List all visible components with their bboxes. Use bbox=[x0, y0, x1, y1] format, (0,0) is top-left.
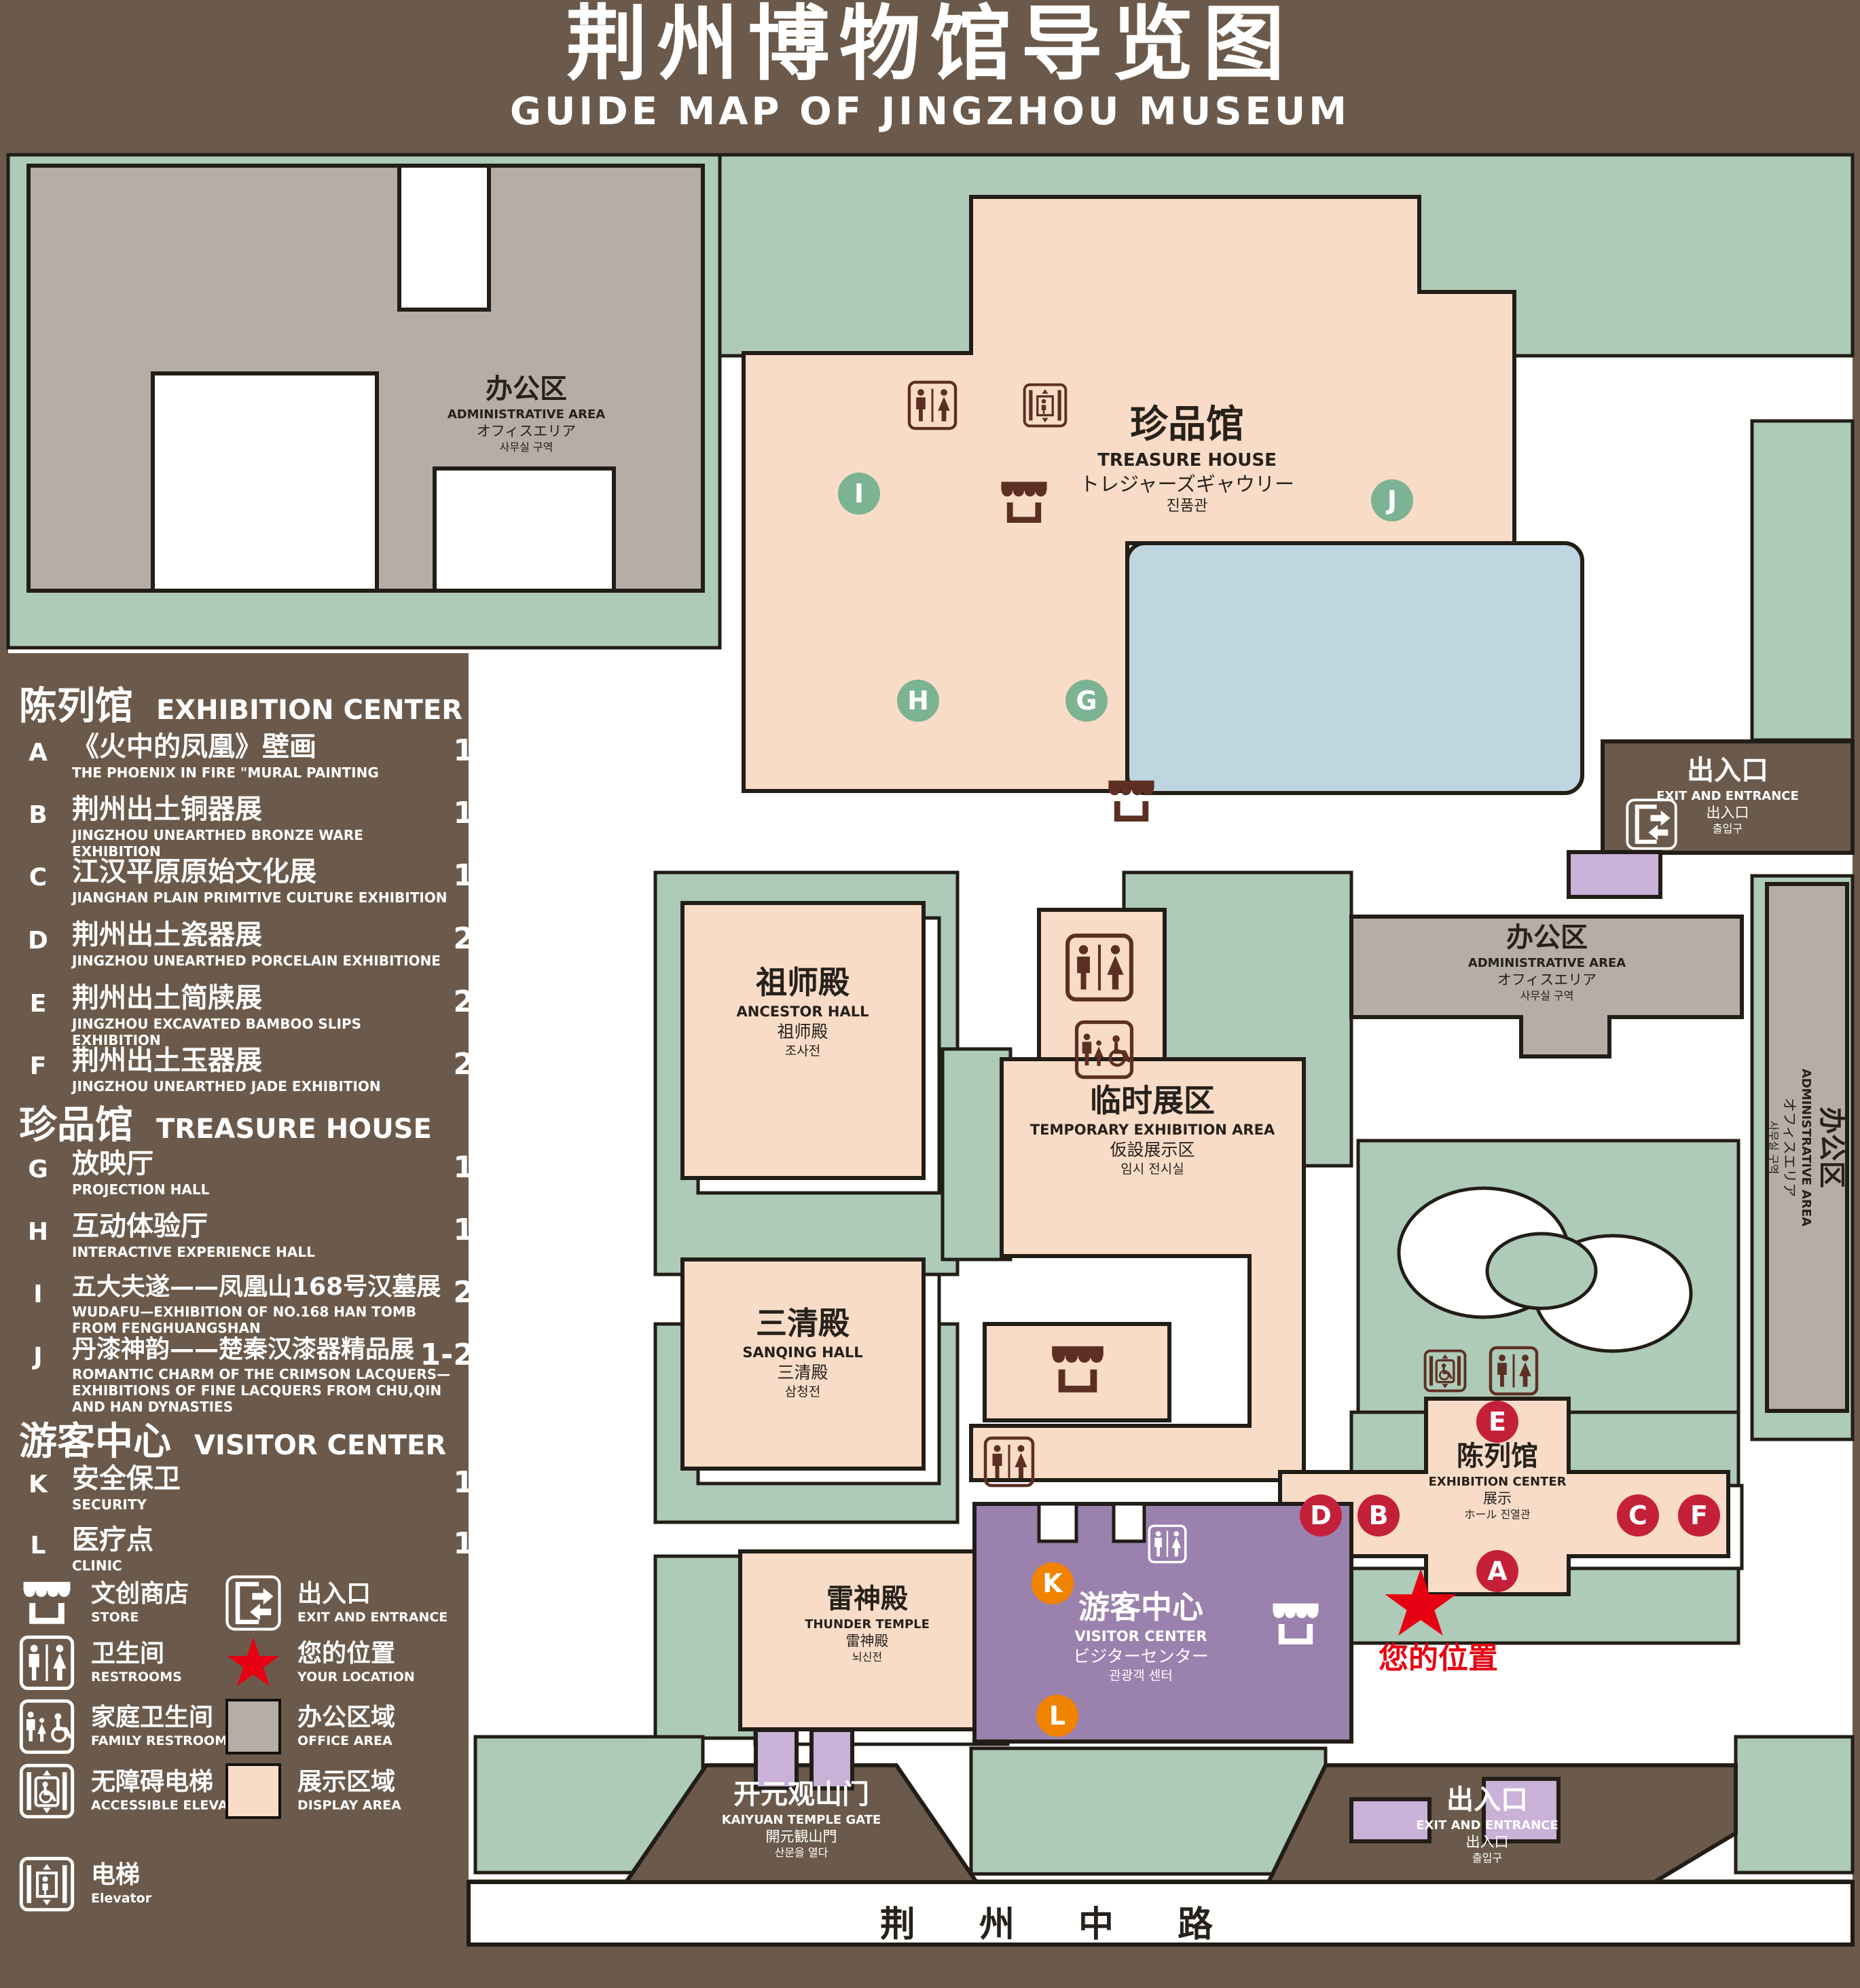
building-name-jp: オフィスエリア bbox=[1468, 971, 1626, 989]
building-name-en: SANQING HALL bbox=[742, 1344, 862, 1362]
exit-kr: 출입구 bbox=[1656, 822, 1799, 836]
legend-item-C: C 江汉平原原始文化展 JIANGHAN PLAIN PRIMITIVE CUL… bbox=[19, 857, 494, 906]
symbol-zh: 卫生间 bbox=[91, 1641, 182, 1667]
map-marker-L: L bbox=[1036, 1695, 1078, 1737]
marker-badge-J: J bbox=[19, 1338, 57, 1376]
map-marker-I: I bbox=[838, 473, 880, 515]
symbol-en: Elevator bbox=[91, 1891, 151, 1906]
symbol-en: RESTROOMS bbox=[91, 1670, 182, 1685]
section-title-zh: 陈列馆 bbox=[19, 676, 133, 731]
accessible-elevator-icon bbox=[19, 1763, 75, 1819]
marker-letter: E bbox=[1489, 1407, 1506, 1437]
restroom-icon bbox=[907, 372, 958, 439]
legend-symbol-your-location: 您的位置 YOUR LOCATION bbox=[225, 1635, 415, 1691]
floor-label: 2F bbox=[453, 984, 494, 1019]
legend-symbol-family-restrooms: 家庭卫生间 FAMILY RESTROOMS bbox=[19, 1699, 237, 1754]
item-title-en: JIANGHAN PLAIN PRIMITIVE CULTURE EXHIBIT… bbox=[72, 889, 452, 906]
item-title-zh: 荆州出土铜器展 bbox=[72, 794, 452, 824]
building-name-zh: 办公区 bbox=[1814, 1069, 1848, 1226]
legend-item-L: L 医疗点 CLINIC 1F bbox=[19, 1525, 494, 1574]
marker-badge-E: E bbox=[19, 984, 57, 1023]
symbol-en: STORE bbox=[91, 1610, 189, 1625]
item-title-zh: 荆州出土简牍展 bbox=[72, 983, 452, 1013]
item-title-zh: 荆州出土瓷器展 bbox=[72, 920, 452, 950]
building-name-zh: 珍品馆 bbox=[1080, 401, 1294, 449]
courtyard bbox=[399, 166, 489, 310]
store-icon bbox=[997, 475, 1051, 530]
label-exhibition-center: 陈列馆 EXHIBITION CENTER 展示 ホール 진열관 bbox=[1429, 1439, 1567, 1522]
item-title-en: JINGZHOU EXCAVATED BAMBOO SLIPS EXHIBITI… bbox=[72, 1016, 452, 1048]
visitor-center-notch bbox=[1039, 1504, 1076, 1541]
legend-item-F: F 荆州出土玉器展 JINGZHOU UNEARTHED JADE EXHIBI… bbox=[19, 1046, 494, 1094]
building-name-zh: 办公区 bbox=[1468, 921, 1626, 955]
floor-label: 1F bbox=[453, 1526, 494, 1561]
building-name-zh: 雷神殿 bbox=[805, 1582, 930, 1617]
marker-letter: B bbox=[1369, 1501, 1389, 1530]
item-title-zh: 安全保卫 bbox=[72, 1464, 452, 1494]
item-title-en: JINGZHOU UNEARTHED PORCELAIN EXHIBITIONE bbox=[72, 953, 452, 969]
your-location-star-icon bbox=[225, 1635, 281, 1691]
building-gatehouse bbox=[1569, 852, 1660, 897]
label-visitor-center: 游客中心 VISITOR CENTER ビジターセンター 관광객 센터 bbox=[1073, 1587, 1209, 1684]
building-name-en: TREASURE HOUSE bbox=[1080, 449, 1294, 472]
item-title-en: JINGZHOU UNEARTHED JADE EXHIBITION bbox=[72, 1078, 452, 1094]
your-location-star-icon bbox=[1383, 1566, 1459, 1642]
symbol-en: EXIT AND ENTRANCE bbox=[297, 1610, 448, 1625]
item-title-zh: 放映厅 bbox=[72, 1149, 452, 1179]
building-name-en: THUNDER TEMPLE bbox=[805, 1617, 930, 1632]
building-name-en: ADMINISTRATIVE AREA bbox=[1798, 1069, 1814, 1226]
label-kaiyuan-gate: 开元观山门 KAIYUAN TEMPLE GATE 開元観山門 산문을 열다 bbox=[722, 1778, 881, 1860]
building-name-jp: オフィスエリア bbox=[448, 422, 605, 441]
map-marker-A: A bbox=[1476, 1550, 1518, 1592]
legend-item-D: D 荆州出土瓷器展 JINGZHOU UNEARTHED PORCELAIN E… bbox=[19, 920, 494, 969]
item-title-en: THE PHOENIX IN FIRE "MURAL PAINTING bbox=[72, 765, 452, 781]
legend-item-G: G 放映厅 PROJECTION HALL 1F bbox=[19, 1149, 494, 1198]
floor-label: 2F bbox=[453, 921, 494, 956]
legend-section-exhibition-center: 陈列馆 EXHIBITION CENTER bbox=[19, 676, 494, 731]
floor-label: 1F bbox=[453, 796, 494, 830]
label-thunder-temple: 雷神殿 THUNDER TEMPLE 雷神殿 뇌신전 bbox=[805, 1582, 930, 1665]
building-name-zh: 陈列馆 bbox=[1429, 1439, 1567, 1474]
building-name-jp: ビジターセンター bbox=[1073, 1646, 1209, 1668]
marker-letter: A bbox=[1487, 1556, 1507, 1586]
section-title-zh: 游客中心 bbox=[19, 1411, 171, 1466]
marker-badge-D: D bbox=[19, 921, 57, 959]
section-title-en: EXHIBITION CENTER bbox=[156, 695, 462, 726]
building-name-en: ADMINISTRATIVE AREA bbox=[448, 407, 605, 422]
marker-letter: H bbox=[907, 686, 929, 716]
office-area-swatch bbox=[225, 1699, 281, 1754]
restroom-icon bbox=[19, 1635, 75, 1691]
floor-label: 1F bbox=[453, 1150, 494, 1185]
visitor-center-notch bbox=[1114, 1504, 1144, 1541]
symbol-en: OFFICE AREA bbox=[297, 1733, 395, 1748]
symbol-zh: 出入口 bbox=[297, 1581, 448, 1607]
section-title-zh: 珍品馆 bbox=[19, 1094, 133, 1149]
map-marker-K: K bbox=[1032, 1562, 1074, 1604]
item-title-en: SECURITY bbox=[72, 1496, 452, 1513]
building-name-zh: 游客中心 bbox=[1073, 1587, 1209, 1627]
map-marker-J: J bbox=[1371, 479, 1413, 521]
map-marker-G: G bbox=[1065, 680, 1108, 722]
item-title-en: CLINIC bbox=[72, 1558, 452, 1574]
guide-map-poster: 荆州博物馆导览图 GUIDE MAP OF JINGZHOU MUSEUM bbox=[0, 0, 1860, 1988]
label-exit-bottom: 出入口 EXIT AND ENTRANCE 出入口 출입구 bbox=[1416, 1783, 1558, 1866]
symbol-zh: 您的位置 bbox=[297, 1641, 415, 1667]
legend-section-visitor-center: 游客中心 VISITOR CENTER bbox=[19, 1411, 494, 1466]
legend-item-K: K 安全保卫 SECURITY 1F bbox=[19, 1464, 494, 1513]
symbol-en: DISPLAY AREA bbox=[297, 1798, 401, 1813]
map-marker-E: E bbox=[1476, 1401, 1518, 1443]
floor-label: 1F bbox=[453, 733, 494, 768]
item-title-en: PROJECTION HALL bbox=[72, 1181, 452, 1198]
item-title-en: WUDAFU—EXHIBITION OF NO.168 HAN TOMB FRO… bbox=[72, 1304, 452, 1336]
legend-item-E: E 荆州出土简牍展 JINGZHOU EXCAVATED BAMBOO SLIP… bbox=[19, 983, 494, 1048]
store-icon bbox=[1104, 774, 1159, 828]
marker-letter: I bbox=[854, 479, 864, 509]
section-title-en: TREASURE HOUSE bbox=[156, 1113, 432, 1145]
item-title-en: INTERACTIVE EXPERIENCE HALL bbox=[72, 1244, 452, 1260]
floor-label: 1F bbox=[453, 1465, 494, 1500]
exit-kr: 출입구 bbox=[1416, 1852, 1558, 1865]
symbol-zh: 家庭卫生间 bbox=[91, 1705, 237, 1731]
building-name-kr: 관광객 센터 bbox=[1073, 1668, 1209, 1684]
building-name-jp: 三清殿 bbox=[742, 1362, 862, 1384]
item-title-en: ROMANTIC CHARM OF THE CRIMSON LACQUERS—E… bbox=[72, 1366, 452, 1415]
map-marker-C: C bbox=[1617, 1494, 1659, 1536]
building-name-jp: 開元観山門 bbox=[722, 1828, 881, 1846]
building-name-en: ADMINISTRATIVE AREA bbox=[1468, 955, 1626, 971]
building-name-kr: 사무실 구역 bbox=[1468, 989, 1626, 1003]
item-title-zh: 五大夫遂——凤凰山168号汉墓展 bbox=[72, 1274, 452, 1301]
marker-badge-A: A bbox=[19, 733, 57, 771]
floor-label: 2F bbox=[453, 1275, 494, 1310]
courtyard bbox=[435, 468, 614, 591]
building-name-zh: 祖师殿 bbox=[737, 963, 869, 1003]
lawn-bottom-mid bbox=[971, 1748, 1326, 1874]
building-name-jp: トレジャーズギャウリー bbox=[1080, 472, 1294, 497]
building-name-kr: 사무실 구역 bbox=[1766, 1069, 1779, 1226]
exit-zh: 出入口 bbox=[1416, 1783, 1558, 1818]
legend-item-H: H 互动体验厅 INTERACTIVE EXPERIENCE HALL 1F bbox=[19, 1211, 494, 1260]
item-title-en: JINGZHOU UNEARTHED BRONZE WARE EXHIBITIO… bbox=[72, 827, 452, 860]
exit-jp: 出入口 bbox=[1656, 804, 1799, 822]
building-name-kr: 조사전 bbox=[737, 1043, 869, 1059]
building-name-jp: オフィスエリア bbox=[1780, 1069, 1798, 1226]
label-treasure-house: 珍品馆 TREASURE HOUSE トレジャーズギャウリー 진품관 bbox=[1080, 401, 1294, 516]
legend-symbol-store: 文创商店 STORE bbox=[19, 1575, 189, 1631]
accessible-elevator-icon bbox=[1423, 1347, 1467, 1395]
marker-letter: D bbox=[1310, 1501, 1332, 1530]
courtyard bbox=[153, 373, 377, 591]
floor-label: 1F bbox=[453, 1213, 494, 1247]
marker-letter: K bbox=[1042, 1568, 1062, 1598]
exit-jp: 出入口 bbox=[1416, 1833, 1558, 1852]
item-title-zh: 医疗点 bbox=[72, 1525, 452, 1555]
building-name-en: VISITOR CENTER bbox=[1073, 1627, 1209, 1646]
building-name-jp: 雷神殿 bbox=[805, 1632, 930, 1651]
exit-zh: 出入口 bbox=[1656, 754, 1799, 788]
marker-letter: C bbox=[1628, 1501, 1647, 1530]
label-ancestor-hall: 祖师殿 ANCESTOR HALL 祖师殿 조사전 bbox=[737, 963, 869, 1059]
item-title-zh: 荆州出土玉器展 bbox=[72, 1046, 452, 1075]
section-title-en: VISITOR CENTER bbox=[194, 1430, 446, 1461]
building-name-kr: 산문을 열다 bbox=[722, 1846, 881, 1860]
map-marker-H: H bbox=[897, 680, 939, 722]
marker-letter: F bbox=[1690, 1501, 1708, 1530]
restroom-icon bbox=[983, 1429, 1035, 1495]
item-title-zh: 《火中的凤凰》壁画 bbox=[72, 732, 452, 762]
legend-symbol-elevator: 电梯 Elevator bbox=[19, 1856, 151, 1912]
legend-symbol-display-area: 展示区域 DISPLAY AREA bbox=[225, 1763, 401, 1819]
elevator-icon bbox=[1023, 372, 1068, 439]
building-name-zh: 办公区 bbox=[448, 372, 605, 407]
marker-badge-C: C bbox=[19, 858, 57, 896]
symbol-en: YOUR LOCATION bbox=[297, 1670, 415, 1685]
symbol-zh: 展示区域 bbox=[297, 1769, 401, 1795]
legend-symbol-accessible-elevator: 无障碍电梯 ACCESSIBLE ELEVATOR bbox=[19, 1763, 257, 1819]
symbol-zh: 电梯 bbox=[91, 1862, 151, 1888]
item-title-zh: 丹漆神韵——楚秦汉漆器精品展 bbox=[72, 1336, 452, 1363]
building-name-en: ANCESTOR HALL bbox=[737, 1003, 869, 1021]
floor-label: 1F bbox=[453, 858, 494, 893]
building-name-en: EXHIBITION CENTER bbox=[1429, 1474, 1567, 1490]
building-name-zh: 临时展区 bbox=[1030, 1081, 1275, 1121]
elevator-icon bbox=[19, 1856, 75, 1912]
legend-item-A: A 《火中的凤凰》壁画 THE PHOENIX IN FIRE "MURAL P… bbox=[19, 732, 494, 781]
store-icon bbox=[1267, 1597, 1324, 1651]
marker-letter: J bbox=[1387, 485, 1397, 515]
building-name-kr: 진품관 bbox=[1080, 497, 1294, 516]
symbol-en: FAMILY RESTROOMS bbox=[91, 1733, 237, 1748]
restroom-icon bbox=[1486, 1346, 1542, 1396]
legend-item-B: B 荆州出土铜器展 JINGZHOU UNEARTHED BRONZE WARE… bbox=[19, 794, 494, 860]
symbol-zh: 办公区域 bbox=[297, 1705, 395, 1731]
legend-symbol-restrooms: 卫生间 RESTROOMS bbox=[19, 1635, 182, 1691]
family-restroom-icon bbox=[1073, 1020, 1135, 1080]
pond bbox=[1127, 543, 1582, 793]
road-name: 荆 州 中 路 bbox=[880, 1896, 1239, 1947]
marker-badge-F: F bbox=[19, 1047, 57, 1085]
legend-item-J: J 丹漆神韵——楚秦汉漆器精品展 ROMANTIC CHARM OF THE C… bbox=[19, 1336, 494, 1415]
label-exit-topright: 出入口 EXIT AND ENTRANCE 出入口 출입구 bbox=[1656, 754, 1799, 836]
display-area-swatch bbox=[225, 1763, 281, 1819]
building-name-zh: 三清殿 bbox=[742, 1304, 862, 1344]
building-name-kr: 뇌신전 bbox=[805, 1651, 930, 1664]
floor-label: 1-2F bbox=[420, 1338, 494, 1372]
building-name-kr: ホール 진열관 bbox=[1429, 1508, 1567, 1522]
label-temporary-exhibition: 临时展区 TEMPORARY EXHIBITION AREA 仮設展示区 임시 … bbox=[1030, 1081, 1275, 1177]
floor-label: 2F bbox=[453, 1047, 494, 1082]
lawn-bottom-right bbox=[1736, 1737, 1853, 1873]
legend-symbol-exit: 出入口 EXIT AND ENTRANCE bbox=[225, 1575, 448, 1631]
symbol-zh: 文创商店 bbox=[91, 1581, 189, 1607]
building-name-jp: 仮設展示区 bbox=[1030, 1139, 1275, 1161]
exit-en: EXIT AND ENTRANCE bbox=[1416, 1818, 1558, 1833]
lawn-right-upper bbox=[1752, 421, 1853, 740]
map-marker-F: F bbox=[1678, 1494, 1720, 1536]
label-admin-strip: 办公区 ADMINISTRATIVE AREA オフィスエリア 사무실 구역 bbox=[1766, 1069, 1848, 1226]
store-icon bbox=[19, 1575, 75, 1631]
exit-en: EXIT AND ENTRANCE bbox=[1656, 788, 1799, 804]
building-name-zh: 开元观山门 bbox=[722, 1778, 881, 1812]
building-name-kr: 삼청전 bbox=[742, 1384, 862, 1400]
restroom-icon bbox=[1148, 1520, 1187, 1568]
marker-badge-L: L bbox=[19, 1526, 57, 1564]
marker-badge-K: K bbox=[19, 1465, 57, 1503]
marker-badge-I: I bbox=[19, 1275, 57, 1313]
marker-letter: G bbox=[1076, 686, 1097, 716]
marker-badge-G: G bbox=[19, 1150, 57, 1188]
building-name-en: KAIYUAN TEMPLE GATE bbox=[722, 1812, 881, 1828]
label-admin-topleft: 办公区 ADMINISTRATIVE AREA オフィスエリア 사무실 구역 bbox=[448, 372, 605, 455]
marker-letter: L bbox=[1049, 1701, 1065, 1731]
building-name-jp: 祖师殿 bbox=[737, 1021, 869, 1043]
legend-item-I: I 五大夫遂——凤凰山168号汉墓展 WUDAFU—EXHIBITION OF … bbox=[19, 1274, 494, 1336]
building-name-en: TEMPORARY EXHIBITION AREA bbox=[1030, 1121, 1275, 1139]
restroom-icon bbox=[1065, 923, 1134, 1012]
label-sanqing-hall: 三清殿 SANQING HALL 三清殿 삼청전 bbox=[742, 1304, 862, 1400]
map-marker-B: B bbox=[1357, 1494, 1400, 1536]
marker-badge-H: H bbox=[19, 1213, 57, 1251]
exit-icon bbox=[1626, 798, 1677, 850]
legend-symbol-office-area: 办公区域 OFFICE AREA bbox=[225, 1699, 395, 1754]
item-title-zh: 互动体验厅 bbox=[72, 1211, 452, 1241]
building-name-kr: 사무실 구역 bbox=[448, 441, 605, 454]
family-restroom-icon bbox=[19, 1699, 75, 1754]
garden-island bbox=[1487, 1234, 1596, 1308]
map-marker-D: D bbox=[1300, 1494, 1342, 1536]
label-admin-right: 办公区 ADMINISTRATIVE AREA オフィスエリア 사무실 구역 bbox=[1468, 921, 1626, 1004]
item-title-zh: 江汉平原原始文化展 bbox=[72, 857, 452, 887]
building-name-kr: 임시 전시실 bbox=[1030, 1161, 1275, 1177]
store-icon bbox=[1046, 1339, 1110, 1400]
marker-badge-B: B bbox=[19, 796, 57, 834]
exit-icon bbox=[225, 1575, 281, 1631]
legend-section-treasure-house: 珍品馆 TREASURE HOUSE bbox=[19, 1094, 494, 1149]
building-name-jp: 展示 bbox=[1429, 1490, 1567, 1508]
